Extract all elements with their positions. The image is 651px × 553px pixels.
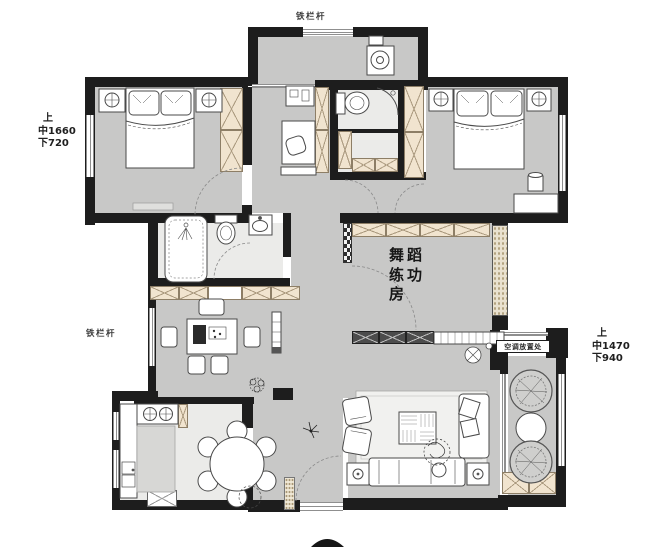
dining-floor [253,397,343,502]
dance-cabinet [454,223,490,237]
kitchen-cabinet [178,404,188,428]
wardrobe [404,132,424,178]
railing-label-left: 铁栏杆 [86,327,116,339]
window [113,450,119,488]
window [303,29,353,35]
dim-line: 上 [43,113,76,126]
wall-segment [248,27,258,86]
window [559,115,566,191]
bedroom-right-floor [426,87,558,213]
wardrobe [315,130,329,173]
tea-cabinet [271,286,300,300]
dim-line: 上 [597,328,630,341]
wall-segment [353,27,428,37]
dance-bench [406,331,434,344]
bathroom-top-floor [338,90,398,131]
bathroom-left-floor [156,223,283,278]
railing-label-top: 铁栏杆 [296,10,326,22]
wall-segment [242,205,252,223]
tea-cabinet [242,286,271,300]
window [498,332,548,336]
dance-room-label-line: 房 [389,285,425,305]
wall-segment [424,77,568,87]
dim-line: 下940 [592,353,630,366]
dance-room-label: 舞蹈 练功 房 [389,246,425,305]
wardrobe [404,86,424,132]
hallway-floor [291,213,348,293]
tea-cabinet-white [208,286,242,300]
wardrobe [375,158,398,172]
entry-pillar [284,477,295,510]
entry-threshold [300,502,343,511]
window [558,374,565,466]
bay-window-left [86,115,94,177]
living-room-floor [348,330,500,498]
tea-cabinet [150,286,179,300]
balcony-cabinet [502,472,529,494]
kitchen-appliance [147,490,177,507]
wall-segment [343,498,508,510]
dimension-label-left: 上 中1660 下720 [38,113,76,151]
wall-segment [134,397,254,404]
wall-segment [283,213,291,257]
sliding-door [252,84,315,88]
tea-cabinet [179,286,208,300]
entry-marker-arrow [311,539,344,547]
dance-room-label-line: 舞蹈 [389,246,425,266]
dance-cabinet [386,223,420,237]
dimension-label-right: 上 中1470 下940 [592,328,630,366]
dim-line: 下720 [38,138,76,151]
dance-room-label-line: 练功 [389,266,425,286]
wall-segment [330,87,338,180]
wall-segment [340,213,492,223]
checker-pillar [343,223,352,263]
floor-plan: 铁栏杆 上 中1660 下720 铁栏杆 舞蹈 练功 房 空调放置处 上 中14… [0,0,651,553]
dim-line: 中1660 [38,126,76,139]
wardrobe [338,131,352,169]
window [149,308,155,366]
dim-line: 中1470 [592,341,630,354]
balcony-cabinet [529,472,556,494]
corridor-floor [330,180,426,213]
dance-cabinet [352,223,386,237]
stone-feature-wall [492,225,508,316]
dance-bench [379,331,406,344]
dance-cabinet [420,223,454,237]
wall-segment [85,77,248,87]
wall-segment [242,400,253,428]
wall-segment [148,278,290,286]
wall-segment [500,352,508,374]
wardrobe [315,87,329,130]
ac-placement-label: 空调放置处 [496,340,550,353]
wardrobe [220,88,243,130]
tea-room-floor [156,290,348,398]
wall-segment [492,316,508,330]
balcony-top-floor [256,36,418,84]
wall-segment [242,87,252,165]
wall-segment [85,213,245,223]
wardrobe [352,158,375,172]
window [113,412,119,440]
wall-segment [112,500,252,510]
dance-bench [352,331,379,344]
wardrobe [220,130,243,172]
wall-segment [492,213,508,225]
wall-segment [273,388,293,400]
